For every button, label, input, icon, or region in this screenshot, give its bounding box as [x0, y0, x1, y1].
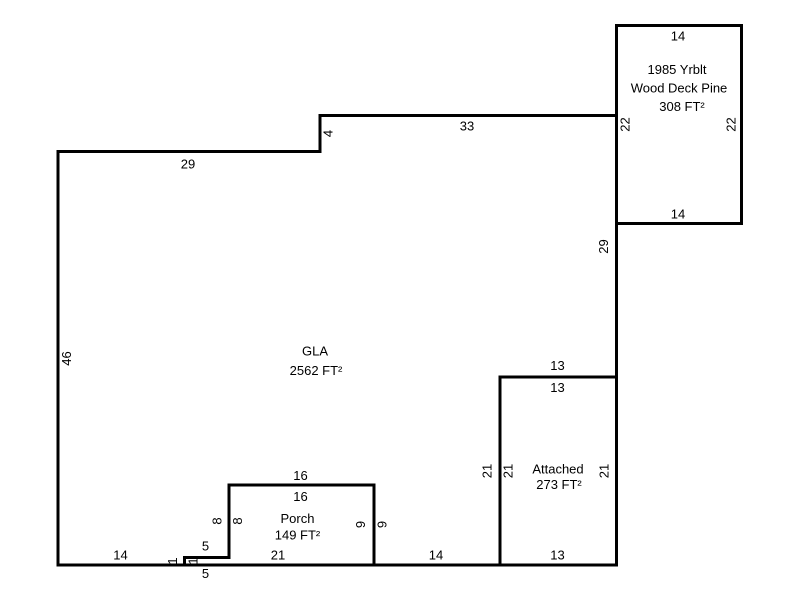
svg-text:21: 21 [597, 464, 612, 478]
svg-text:22: 22 [618, 117, 633, 131]
svg-text:22: 22 [724, 117, 739, 131]
svg-text:21: 21 [501, 464, 516, 478]
svg-text:308 FT²: 308 FT² [659, 99, 705, 114]
svg-text:2562 FT²: 2562 FT² [290, 363, 343, 378]
svg-text:29: 29 [181, 157, 195, 172]
svg-text:5: 5 [202, 539, 209, 554]
svg-text:16: 16 [293, 489, 307, 504]
svg-text:Porch: Porch [281, 511, 315, 526]
svg-text:1985 Yrblt: 1985 Yrblt [647, 62, 706, 77]
svg-text:GLA: GLA [302, 344, 328, 359]
svg-text:1: 1 [165, 557, 180, 564]
svg-text:149 FT²: 149 FT² [275, 528, 321, 543]
svg-text:13: 13 [550, 358, 564, 373]
svg-text:13: 13 [550, 380, 564, 395]
svg-text:33: 33 [460, 119, 474, 134]
svg-text:14: 14 [671, 29, 685, 44]
svg-text:13: 13 [550, 548, 564, 563]
svg-text:46: 46 [59, 351, 74, 365]
svg-text:14: 14 [671, 207, 685, 222]
svg-text:9: 9 [375, 521, 390, 528]
svg-text:29: 29 [596, 239, 611, 253]
svg-text:14: 14 [429, 548, 443, 563]
svg-text:Wood Deck Pine: Wood Deck Pine [631, 81, 728, 96]
svg-text:273 FT²: 273 FT² [536, 477, 582, 492]
svg-text:1: 1 [186, 557, 201, 564]
svg-text:Attached: Attached [532, 462, 583, 477]
svg-text:14: 14 [113, 548, 127, 563]
svg-text:21: 21 [271, 548, 285, 563]
svg-text:21: 21 [480, 464, 495, 478]
svg-text:8: 8 [210, 517, 225, 524]
svg-text:16: 16 [293, 468, 307, 483]
svg-text:4: 4 [321, 130, 336, 137]
svg-text:8: 8 [230, 517, 245, 524]
svg-text:9: 9 [353, 521, 368, 528]
svg-text:5: 5 [202, 566, 209, 581]
